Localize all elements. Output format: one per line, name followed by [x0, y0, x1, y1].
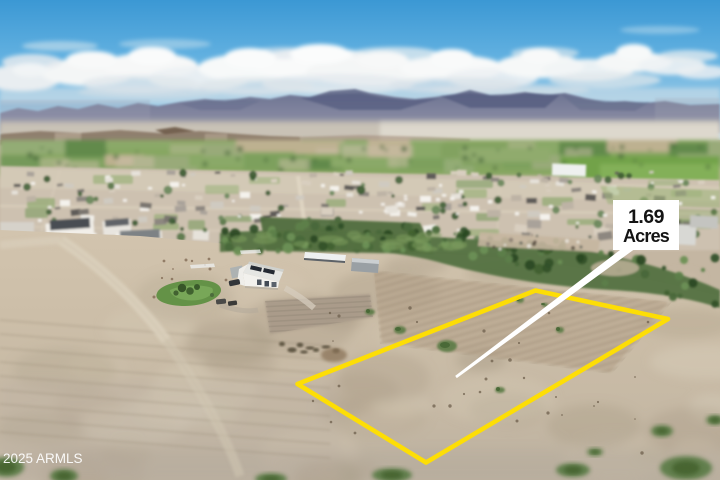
svg-text:Acres: Acres	[623, 226, 670, 246]
svg-text:2025 ARMLS: 2025 ARMLS	[3, 451, 83, 466]
svg-text:1.69: 1.69	[628, 206, 665, 228]
